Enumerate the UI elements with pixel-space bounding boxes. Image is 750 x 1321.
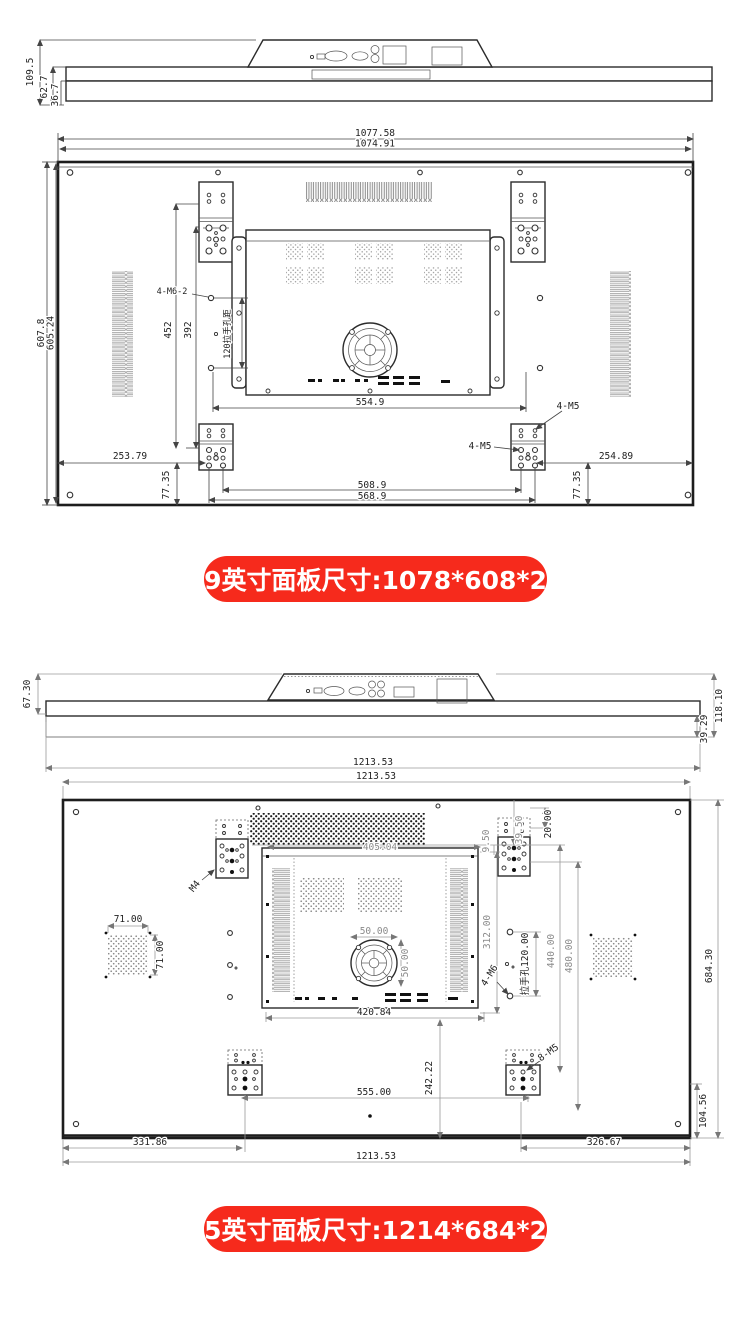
label-8-m5: 8-M5 xyxy=(536,1042,561,1064)
mount-plate-bottom-right-55 xyxy=(506,1050,540,1095)
dim-50-00-h: 50.00 xyxy=(400,948,411,977)
enclosure-left-slots-55 xyxy=(272,868,290,992)
drawing-55-inch: 67.30 118.10 39.29 1213.53 xyxy=(0,640,750,1200)
top-vent-slots-49 xyxy=(305,182,432,202)
dim-242-22: 242.22 xyxy=(424,1061,435,1095)
dim-1077-58: 1077.58 xyxy=(355,128,395,139)
right-mesh-55 xyxy=(593,937,633,977)
dim-62-7: 62.7 xyxy=(39,76,50,99)
product-dimension-sheet: 109.5 62.7 36.7 xyxy=(0,0,750,1321)
side-view-49: 109.5 62.7 36.7 xyxy=(25,40,712,106)
label-4-m6: 4-M6 xyxy=(479,963,501,988)
label-m4: M4 xyxy=(187,878,203,894)
dim-331-86: 331.86 xyxy=(133,1137,168,1148)
label-handle-pitch-55: 拉手孔120.00 xyxy=(519,932,531,995)
dim-104-56: 104.56 xyxy=(698,1094,709,1129)
enclosure-49 xyxy=(232,230,504,395)
dim-77-35-left: 77.35 xyxy=(161,471,172,500)
mount-plate-top-left-55 xyxy=(216,820,248,878)
dim-71-00-w: 71.00 xyxy=(114,914,143,925)
left-vent-slots-49 xyxy=(112,271,133,397)
connector-housing xyxy=(248,40,492,67)
dim-405-04: 405.04 xyxy=(363,842,398,853)
dim-71-00-h: 71.00 xyxy=(155,940,166,969)
dim-77-35-right: 77.35 xyxy=(572,471,583,500)
dim-1213-53-side: 1213.53 xyxy=(353,757,393,768)
dim-480-00: 480.00 xyxy=(564,939,575,974)
dim-253-79: 253.79 xyxy=(113,451,148,462)
label-4-m5-a: 4-M5 xyxy=(557,401,580,412)
dim-1213-53-top: 1213.53 xyxy=(356,771,396,782)
dim-684-30: 684.30 xyxy=(704,949,715,984)
dim-568-9: 568.9 xyxy=(358,491,387,502)
side-view-55: 67.30 118.10 39.29 1213.53 xyxy=(22,674,725,772)
top-vent-mesh-55 xyxy=(250,813,425,845)
label-handle-pitch-49: 120拉手孔距 xyxy=(222,309,233,359)
dim-420-84: 420.84 xyxy=(357,1007,392,1018)
banner-55-size: 55英寸面板尺寸:1214*684*28 xyxy=(204,1206,547,1252)
right-vent-slots-49 xyxy=(610,271,631,397)
rear-view-55: 1213.53 405.04 M4 20.00 9.50 39.50 71.00… xyxy=(63,771,724,1166)
dim-109-5: 109.5 xyxy=(25,58,36,87)
dim-36-7: 36.7 xyxy=(50,84,61,107)
drawing-49-inch: 109.5 62.7 36.7 xyxy=(0,0,750,540)
dim-440-00: 440.00 xyxy=(546,934,557,969)
dim-20-00: 20.00 xyxy=(543,809,554,838)
mount-plate-top-right-49 xyxy=(511,182,545,262)
dim-9-50: 9.50 xyxy=(481,829,492,852)
dim-326-67: 326.67 xyxy=(587,1137,621,1148)
connector-housing-55 xyxy=(268,674,494,700)
dim-312-00: 312.00 xyxy=(482,915,493,950)
enclosure-right-slots-55 xyxy=(450,868,468,992)
dim-605-24: 605.24 xyxy=(46,316,57,351)
left-mesh-55 xyxy=(108,935,148,975)
dim-508-9: 508.9 xyxy=(358,480,387,491)
banner-49-size: 49英寸面板尺寸:1078*608*26 xyxy=(204,556,547,602)
dim-39-50: 39.50 xyxy=(514,815,525,844)
dim-554-9: 554.9 xyxy=(356,397,385,408)
rear-view-49: 1077.58 1074.91 607.8 605.24 452 392 4-M… xyxy=(36,128,693,505)
label-4-m5-b: 4-M5 xyxy=(469,441,492,452)
label-4-m6-2: 4-M6-2 xyxy=(157,287,188,297)
dim-39-29: 39.29 xyxy=(699,714,710,743)
dim-392: 392 xyxy=(183,321,194,338)
dim-1213-53-bottom: 1213.53 xyxy=(356,1151,396,1162)
dim-50-00-w: 50.00 xyxy=(360,926,389,937)
dim-254-89: 254.89 xyxy=(599,451,634,462)
dim-118-10: 118.10 xyxy=(714,689,725,724)
mount-plate-top-left-49 xyxy=(199,182,233,262)
mount-plate-bottom-left-55 xyxy=(228,1050,262,1095)
handle-hole-top-55 xyxy=(507,929,513,935)
dim-452: 452 xyxy=(163,321,174,338)
dim-67-30: 67.30 xyxy=(22,679,33,708)
dim-1074-91: 1074.91 xyxy=(355,139,395,150)
handle-hole-bottom-55 xyxy=(507,993,513,999)
dim-555-00: 555.00 xyxy=(357,1087,392,1098)
